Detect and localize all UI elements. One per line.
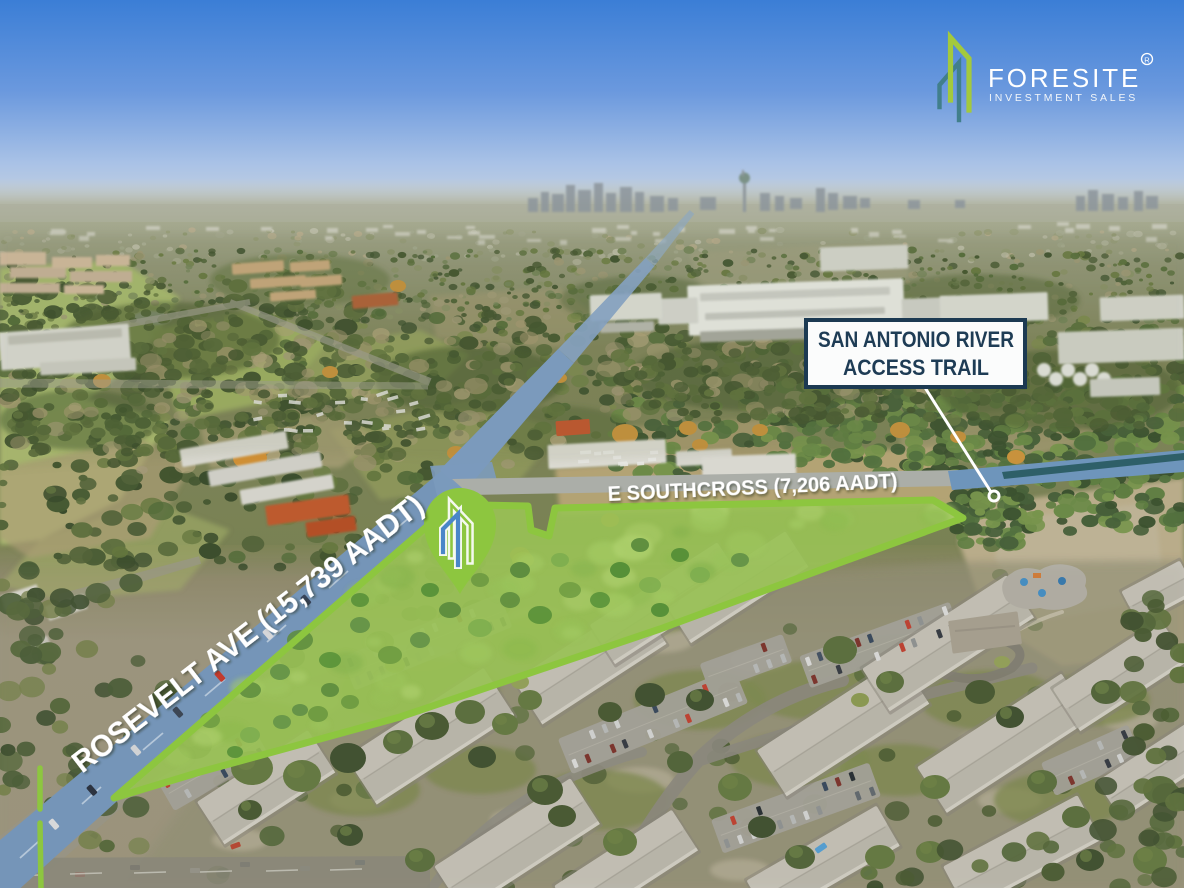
svg-text:R: R	[1144, 56, 1150, 65]
svg-text:ACCESS TRAIL: ACCESS TRAIL	[843, 355, 989, 380]
svg-text:INVESTMENT SALES: INVESTMENT SALES	[989, 92, 1138, 104]
svg-text:FORESITE: FORESITE	[988, 63, 1141, 93]
svg-text:SAN ANTONIO RIVER: SAN ANTONIO RIVER	[818, 327, 1014, 352]
